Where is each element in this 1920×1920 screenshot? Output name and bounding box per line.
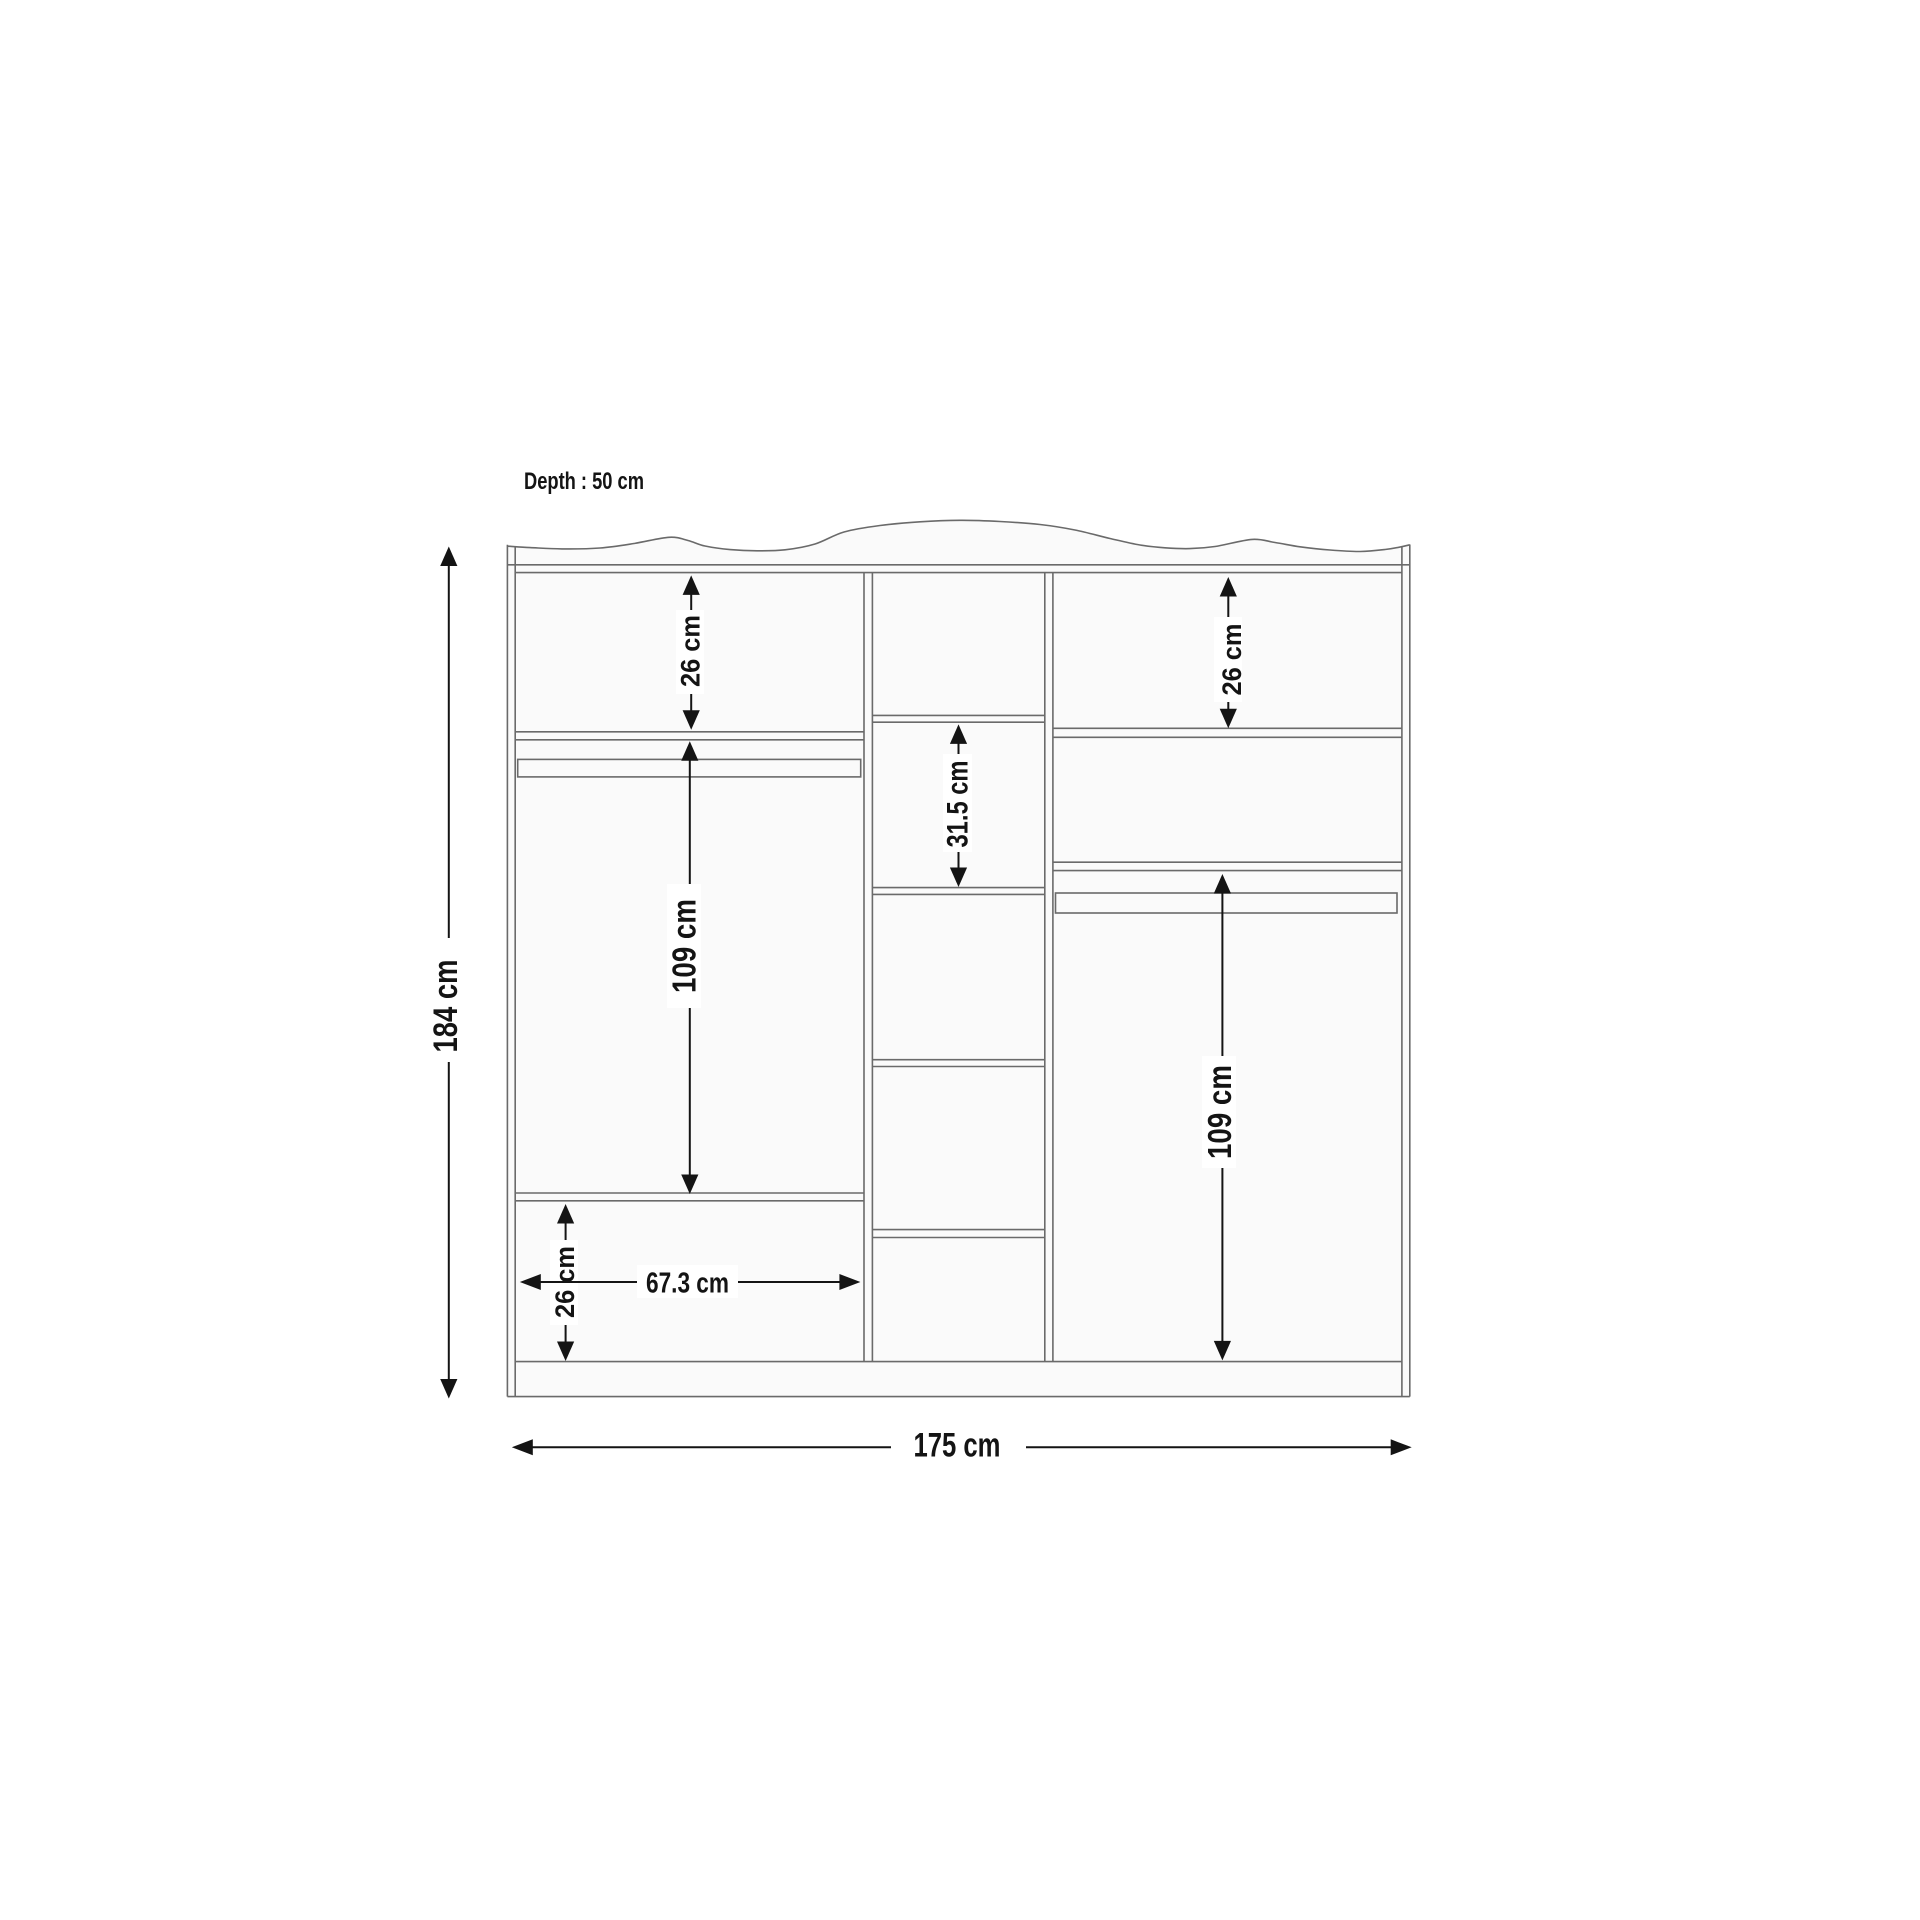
svg-text:26 cm: 26 cm (676, 615, 706, 687)
svg-text:31.5 cm: 31.5 cm (942, 761, 975, 848)
svg-text:184 cm: 184 cm (427, 960, 465, 1053)
svg-text:175 cm: 175 cm (914, 1427, 1001, 1465)
svg-text:26 cm: 26 cm (1217, 624, 1247, 696)
svg-text:109 cm: 109 cm (1201, 1065, 1238, 1159)
svg-text:67.3 cm: 67.3 cm (646, 1268, 729, 1300)
svg-text:Depth : 50 cm: Depth : 50 cm (524, 468, 644, 495)
svg-text:109 cm: 109 cm (666, 899, 703, 993)
